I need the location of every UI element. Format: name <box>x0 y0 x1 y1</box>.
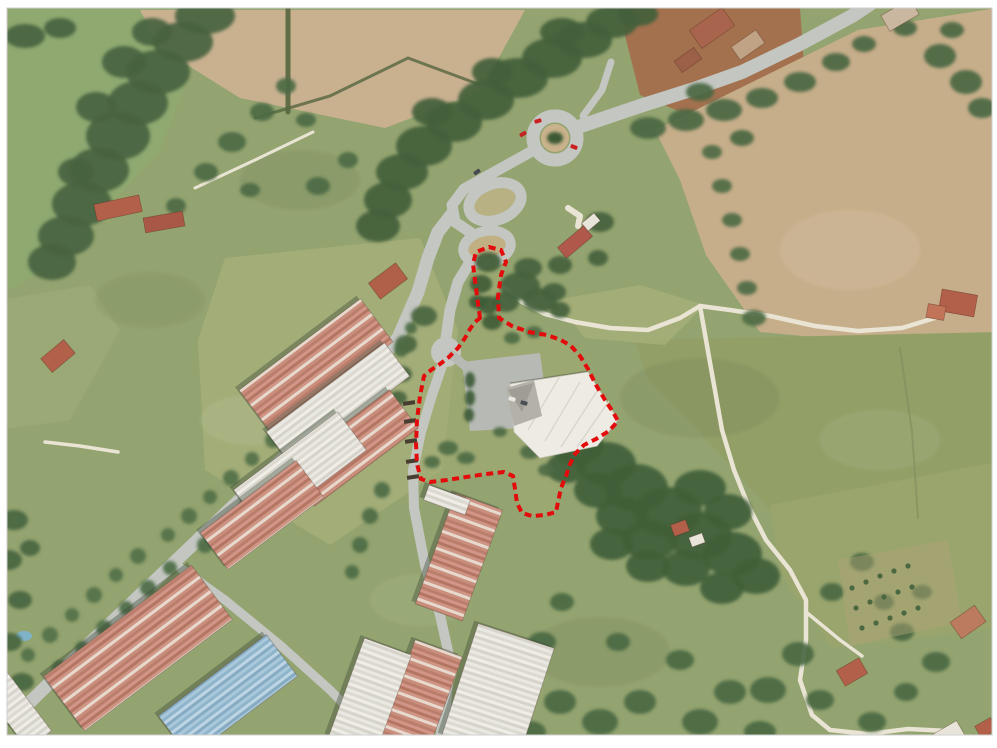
hedge-parking-edge <box>464 372 475 422</box>
tree-blob <box>338 152 358 168</box>
orchard-tree <box>863 579 868 584</box>
orchard-tree <box>881 594 886 599</box>
tree-blob <box>218 132 246 152</box>
tree-blob <box>858 712 886 732</box>
tree-crown <box>65 608 79 622</box>
house-east-wing <box>926 304 946 321</box>
tree-blob <box>8 591 32 609</box>
tree-blob <box>940 22 964 38</box>
tree-blob <box>702 145 722 159</box>
orchard-tree <box>909 584 914 589</box>
roundabout-tree <box>547 132 563 144</box>
tree-blob <box>542 283 566 301</box>
tree-blob <box>590 528 634 560</box>
tree-blob <box>412 98 452 126</box>
field-mottle <box>780 210 920 290</box>
tree-blob <box>28 244 76 280</box>
tree-crown <box>181 508 197 524</box>
tree-blob <box>550 593 574 611</box>
tree-blob <box>5 24 45 48</box>
orchard-tree <box>891 568 896 573</box>
field-mottle <box>820 410 940 470</box>
tree-blob <box>722 213 742 227</box>
photo-margin-right <box>992 0 997 748</box>
tree-blob <box>742 310 766 326</box>
tree-crown <box>203 490 217 504</box>
tree-blob <box>538 464 554 476</box>
orchard-tree <box>873 620 878 625</box>
tree-blob <box>624 690 656 714</box>
tree-blob <box>544 690 576 714</box>
tree-blob <box>424 456 440 468</box>
tree-blob <box>550 302 570 318</box>
orchard-tree <box>877 573 882 578</box>
tree-blob <box>706 99 742 121</box>
tree-blob <box>465 372 475 388</box>
tree-crown <box>394 343 408 357</box>
tree-blob <box>356 210 400 242</box>
tree-blob <box>76 92 116 122</box>
orchard-tree <box>859 625 864 630</box>
tree-blob <box>472 58 512 86</box>
tree-blob <box>540 18 584 46</box>
field-mottle <box>95 272 205 328</box>
aerial-photo <box>0 0 997 748</box>
tree-crown <box>362 508 378 524</box>
tree-crown <box>245 452 259 466</box>
orchard-tree <box>915 605 920 610</box>
tree-blob <box>20 540 40 556</box>
tree-crown <box>405 322 417 334</box>
tree-blob <box>852 36 876 52</box>
tree-blob <box>730 130 754 146</box>
tree-blob <box>240 183 260 197</box>
tree-blob <box>411 306 437 326</box>
tree-blob <box>504 332 520 344</box>
tree-blob <box>822 53 850 71</box>
tree-blob <box>132 18 172 46</box>
tree-blob <box>666 650 694 670</box>
tree-crown <box>161 528 175 542</box>
tree-crown <box>42 627 58 643</box>
tree-blob <box>102 46 146 78</box>
tree-blob <box>894 683 918 701</box>
tree-blob <box>438 441 458 455</box>
photo-margin-bottom <box>0 735 997 748</box>
tree-blob <box>630 117 666 139</box>
tree-blob <box>686 83 714 101</box>
orchard-tree <box>849 585 854 590</box>
tree-blob <box>806 690 834 710</box>
tree-crown <box>374 482 390 498</box>
tree-crown <box>352 537 368 553</box>
tree-blob <box>782 642 814 666</box>
tree-blob <box>306 177 330 195</box>
tree-blob <box>250 103 274 121</box>
tree-blob <box>750 677 786 703</box>
tree-blob <box>582 709 618 735</box>
tree-blob <box>276 78 296 94</box>
orchard-tree <box>905 563 910 568</box>
tree-blob <box>924 44 956 68</box>
tree-blob <box>668 109 704 131</box>
tree-blob <box>44 18 76 38</box>
orchard-tree <box>887 615 892 620</box>
orchard-tree <box>867 599 872 604</box>
tree-blob <box>514 258 542 278</box>
tree-blob <box>784 72 816 92</box>
tree-blob <box>704 494 752 530</box>
map-figure <box>0 0 997 748</box>
tree-blob <box>626 550 670 582</box>
tree-blob <box>465 390 475 406</box>
tree-crown <box>21 648 35 662</box>
tree-blob <box>475 252 501 272</box>
tree-blob <box>682 709 718 735</box>
orchard-tree <box>895 589 900 594</box>
tree-blob <box>166 198 186 214</box>
tree-blob <box>737 281 757 295</box>
tree-blob <box>820 583 844 601</box>
tree-blob <box>588 250 608 266</box>
tree-blob <box>712 179 732 193</box>
tree-crown <box>109 568 123 582</box>
tree-blob <box>714 680 746 704</box>
field-mottle <box>620 358 780 438</box>
tree-blob <box>457 452 475 464</box>
tree-crown <box>345 565 359 579</box>
photo-content <box>0 0 997 748</box>
tree-blob <box>464 408 474 422</box>
tree-blob <box>296 113 316 127</box>
tree-blob <box>194 163 218 181</box>
photo-margin-top <box>0 0 997 8</box>
tree-blob <box>493 427 507 437</box>
tree-crown <box>130 548 146 564</box>
tree-blob <box>548 256 572 274</box>
tree-blob <box>746 88 778 108</box>
tree-blob <box>922 652 950 672</box>
tree-blob <box>606 633 630 651</box>
photo-margin-left <box>0 0 7 748</box>
orchard-tree <box>853 605 858 610</box>
tree-blob <box>730 247 750 261</box>
tree-blob <box>58 158 94 186</box>
tree-crown <box>86 587 102 603</box>
orchard-tree <box>901 610 906 615</box>
tree-blob <box>950 70 982 94</box>
